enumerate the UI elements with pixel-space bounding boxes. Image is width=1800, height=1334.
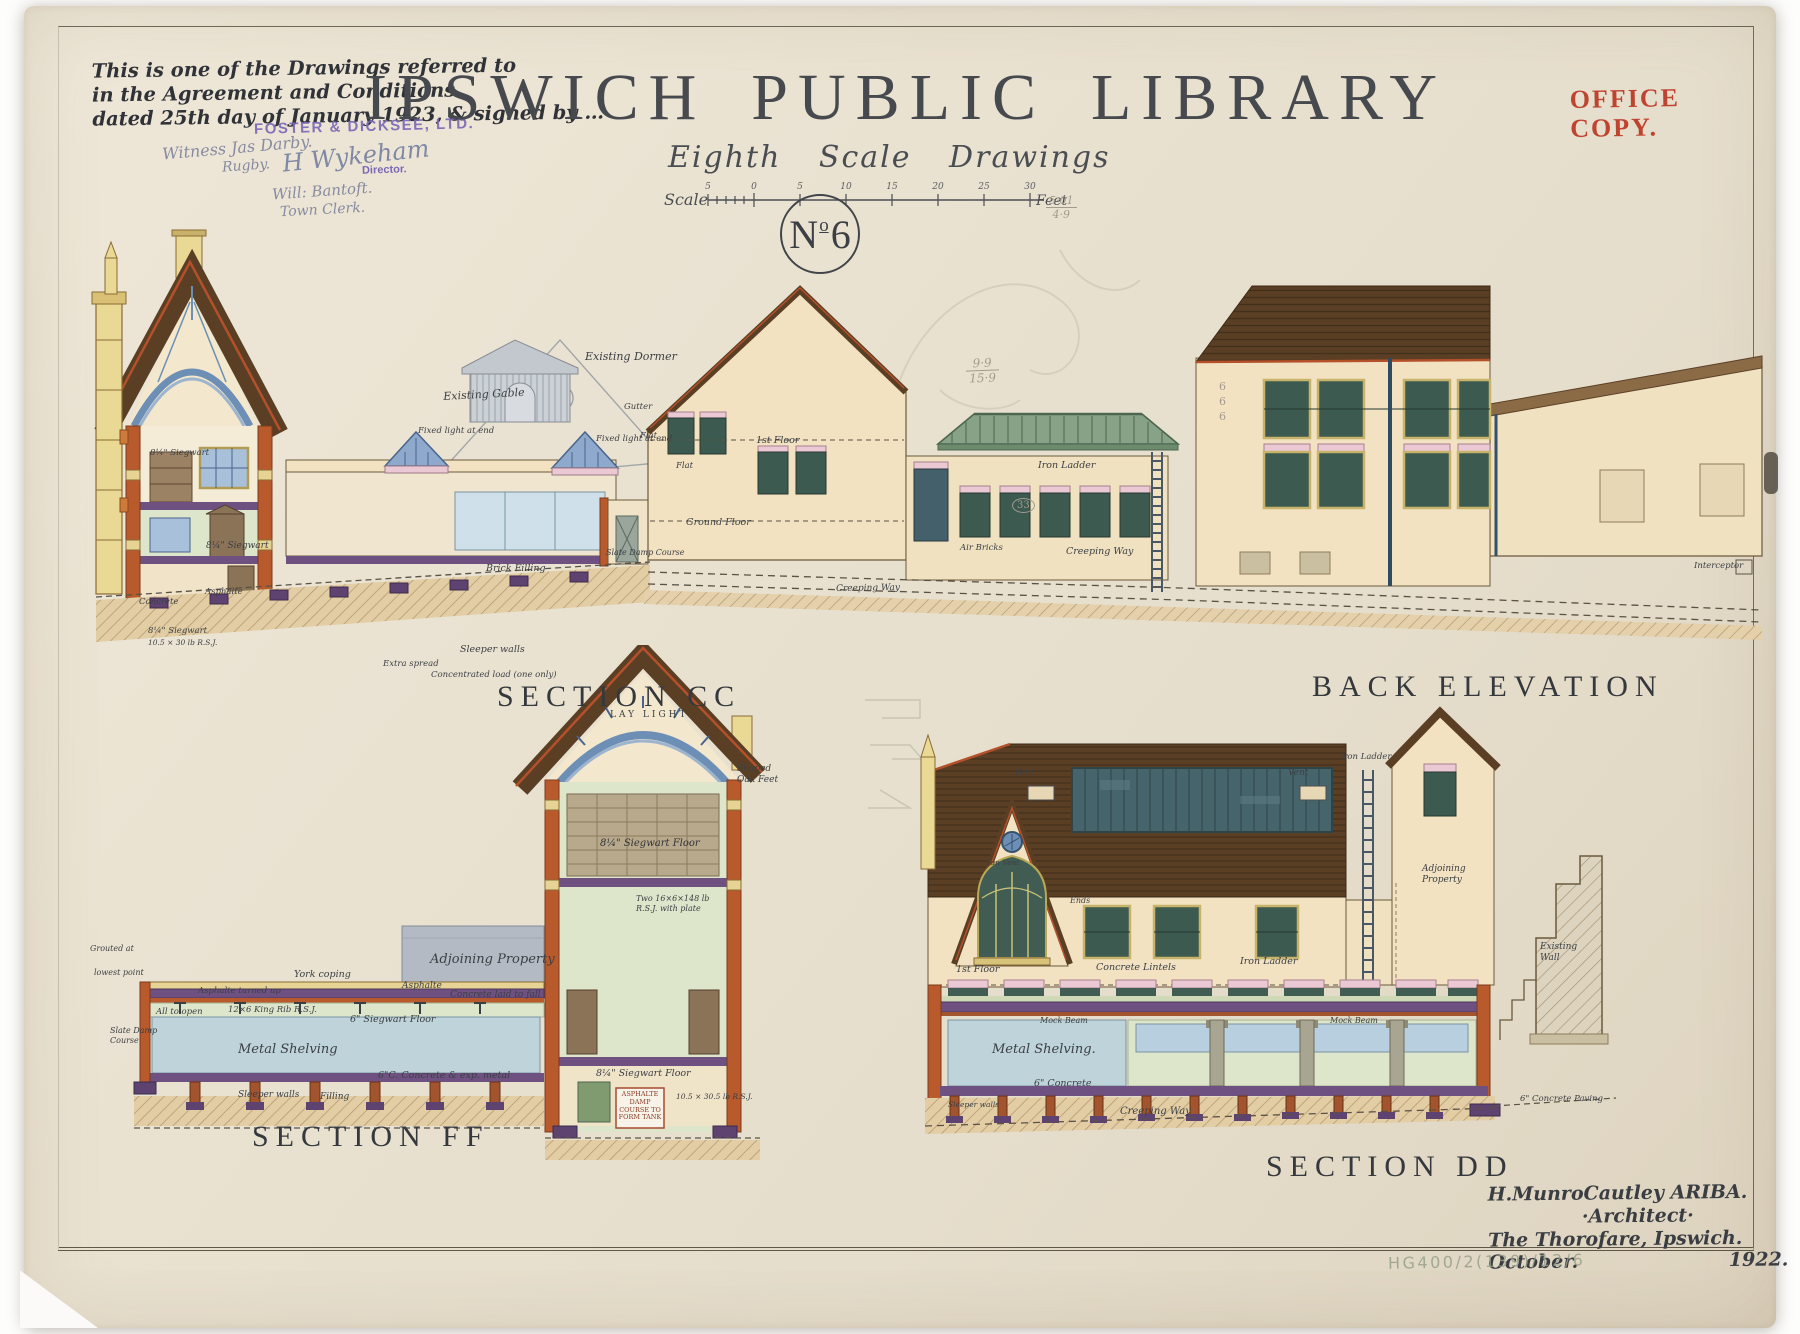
note-ff-sleeper: Sleeper walls xyxy=(238,1090,299,1100)
note-dd-vent-1: Vent xyxy=(1014,768,1034,778)
note-ff-lowest: lowest point xyxy=(94,968,144,977)
note-ff-grouted: Grouted at xyxy=(90,944,134,953)
section-dd-drawing xyxy=(795,640,1620,1175)
note-cc-existing-dormer: Existing Dormer xyxy=(585,350,677,363)
pencil-fraction-1-num: 9·9 xyxy=(966,355,999,371)
scale-label: Scale xyxy=(664,190,708,209)
note-ff-siegwart-stack: 8¼" Siegwart Floor xyxy=(600,838,700,849)
office-copy-line2: COPY. xyxy=(1570,112,1681,143)
pencil-fraction-2: 5·01 4·9 xyxy=(1046,194,1077,221)
note-dd-vent-2: Vent xyxy=(1288,768,1308,778)
note-be-flat-2: Flat xyxy=(676,461,693,471)
note-cc-siegwart-mid: 8¼" Siegwart xyxy=(206,541,269,551)
pencil-fraction-2-den: 4·9 xyxy=(1046,208,1077,221)
note-ff-adjoining: Adjoining Property xyxy=(430,952,555,967)
note-ff-concrete-exp: 6"C. Concrete & exp. metal xyxy=(378,1070,510,1081)
sheet-number-digit: 6 xyxy=(831,211,851,258)
caption-section-cc: SECTION CC xyxy=(497,680,741,714)
note-ff-metal-shelving: Metal Shelving xyxy=(238,1042,338,1057)
note-cc-fixed-light-2: Fixed light at end xyxy=(596,434,672,444)
scanned-drawing-sheet: This is one of the Drawings referred to … xyxy=(0,0,1800,1334)
sheet-title: IPSWICH PUBLIC LIBRARY xyxy=(365,60,1447,136)
title-word-ipswich: IPSWICH xyxy=(365,60,706,136)
note-ff-asphalte: Asphalte xyxy=(402,981,442,991)
note-dd-mock-beam-1: Mock Beam xyxy=(1040,1016,1088,1025)
scale-bar: Scale 5 0 5 10 15 20 25 30 Feet xyxy=(662,176,1102,216)
note-be-creeping-way-2: Creeping Way xyxy=(836,583,900,594)
note-cc-extra-spread: Extra spread xyxy=(383,659,439,669)
note-ff-siegwart6: 6" Siegwart Floor xyxy=(350,1014,435,1025)
dd-ground-storey xyxy=(925,980,1500,1134)
note-ff-filling: Filling xyxy=(320,1092,349,1102)
be-tall-block xyxy=(1196,286,1490,586)
note-be-ground-floor: Ground Floor xyxy=(686,517,751,528)
note-dd-concrete-lintels: Concrete Lintels xyxy=(1096,962,1176,973)
architect-name: H.MunroCautley ARIBA. xyxy=(1488,1180,1788,1206)
sheet-number-badge: No6 xyxy=(780,194,860,274)
note-dd-fan-vent: Fan Vent xyxy=(986,858,1019,867)
cc-hall xyxy=(286,432,618,564)
note-dd-first-floor: 1st Floor xyxy=(956,964,999,975)
note-be-flat-1: Flat xyxy=(640,431,657,441)
ff-left-wing xyxy=(134,982,544,1128)
note-cc-concrete: Concrete xyxy=(139,597,178,607)
note-be-interceptor: Interceptor xyxy=(1694,561,1743,571)
note-be-creeping-way: Creeping Way xyxy=(1066,546,1133,557)
architect-title: ·Architect· xyxy=(1488,1203,1788,1229)
note-dd-paving: 6" Concrete Paving xyxy=(1520,1094,1603,1104)
dd-finial xyxy=(921,735,935,869)
pencil-circled-number: 33 xyxy=(1012,498,1035,513)
note-dd-mock-beam-2: Mock Beam xyxy=(1330,1016,1378,1025)
note-dd-sleeper: Sleeper walls xyxy=(948,1100,999,1109)
scale-tick: 25 xyxy=(977,182,990,192)
note-be-air-bricks: Air Bricks xyxy=(960,543,1003,553)
note-cc-asphalte: Asphalte xyxy=(205,587,243,597)
caption-section-dd: SECTION DD xyxy=(1266,1150,1514,1184)
dd-existing-wall xyxy=(1494,856,1616,1106)
title-word-library: LIBRARY xyxy=(1091,60,1447,136)
note-ff-siegwart-floor: 8¼" Siegwart Floor xyxy=(596,1068,691,1079)
note-dd-concrete6: 6" Concrete xyxy=(1034,1078,1091,1089)
pencil-fraction-2-num: 5·01 xyxy=(1046,194,1077,208)
note-cc-fixed-light-1: Fixed light at end xyxy=(418,426,494,436)
back-elevation-drawing xyxy=(605,265,1765,675)
office-copy-stamp: OFFICE COPY. xyxy=(1570,83,1681,143)
architect-year: 1922. xyxy=(1729,1249,1789,1272)
architect-address: The Thorofare, Ipswich. xyxy=(1488,1226,1788,1252)
scale-tick: 5 xyxy=(705,182,711,192)
scale-tick: 30 xyxy=(1024,182,1036,192)
note-cc-siegwart-lower: 8¼" Siegwart xyxy=(148,626,207,636)
note-cc-brick-filling: Brick Filling xyxy=(486,563,546,574)
caption-section-ff: SECTION FF xyxy=(252,1120,490,1154)
note-dd-creeping-way: Creeping Way xyxy=(1120,1106,1191,1117)
note-cc-concentrated-load: Concentrated load (one only) xyxy=(431,670,557,680)
note-be-first-floor: 1st Floor xyxy=(756,435,799,446)
pencil-fraction-1: 9·9 15·9 xyxy=(966,355,1000,385)
sheet-subtitle: Eighth Scale Drawings xyxy=(668,140,1111,175)
note-cc-slate-damp: Slate Damp Course xyxy=(606,548,685,557)
note-dd-iron-ladder-1: Iron Ladder xyxy=(1240,956,1297,967)
scale-tick: 5 xyxy=(797,182,803,192)
cc-tower xyxy=(92,242,128,594)
note-ff-rsj-small: 10.5 × 30.5 lb R.S.J. xyxy=(676,1092,753,1101)
note-dd-iron-ladder-2: Iron Ladder xyxy=(1340,752,1391,762)
pencil-sixes: 666 xyxy=(1216,380,1229,425)
paper-edge-nick xyxy=(1764,452,1778,494)
pencil-fraction-1-den: 15·9 xyxy=(966,370,999,385)
note-ff-damp-tank: Asphalte Damp Course to form tank xyxy=(618,1091,662,1122)
note-ff-concrete-fall: Concrete laid to fall xyxy=(450,990,541,1000)
scale-tick: 15 xyxy=(886,182,898,192)
be-low-wing xyxy=(906,414,1178,592)
title-word-public: PUBLIC xyxy=(751,60,1046,136)
note-cc-sleeper-walls: Sleeper walls xyxy=(460,644,525,655)
sheet-number-n: N xyxy=(789,211,818,258)
note-ff-lay-light: LAY LIGHT xyxy=(610,710,689,720)
reference-number: HG400/2(139)/12/6 xyxy=(1388,1250,1586,1272)
note-ff-rsj-two: Two 16×6×148 lb R.S.J. with plate xyxy=(636,894,720,913)
note-ff-all-open: All to open xyxy=(156,1007,203,1017)
office-copy-line1: OFFICE xyxy=(1570,83,1681,114)
note-be-gutter: Gutter xyxy=(624,402,652,412)
note-ff-king-rib: 12×6 King Rib R.S.J. xyxy=(228,1005,317,1015)
sheet-number-o: o xyxy=(819,215,829,237)
note-ff-york-coping: York coping xyxy=(294,969,351,980)
signature-witness-town: Rugby. xyxy=(222,156,271,175)
note-ff-asphalte-turned: Asphalte turned up xyxy=(198,986,281,996)
note-ff-oak-feet: Shaped Oak Feet xyxy=(737,764,785,786)
note-dd-existing-wall: Existing Wall xyxy=(1540,942,1592,964)
caption-back-elevation: BACK ELEVATION xyxy=(1312,670,1664,704)
scale-tick: 20 xyxy=(931,182,944,192)
scale-tick: 0 xyxy=(751,182,757,192)
scale-tick: 10 xyxy=(840,182,852,192)
note-cc-rsj: 10.5 × 30 lb R.S.J. xyxy=(148,638,217,647)
note-cc-siegwart-upper: 8¼" Siegwart xyxy=(150,448,209,458)
be-right-building xyxy=(1490,356,1762,556)
note-dd-adjoining: Adjoining Property xyxy=(1422,864,1482,886)
dd-pencil-sketch xyxy=(865,700,922,808)
note-dd-metal-shelving: Metal Shelving. xyxy=(992,1042,1096,1057)
note-ff-slate-damp: Slate Damp Course xyxy=(110,1026,164,1045)
note-be-iron-ladder: Iron Ladder xyxy=(1038,460,1095,471)
note-dd-ends: Ends xyxy=(1070,896,1090,905)
